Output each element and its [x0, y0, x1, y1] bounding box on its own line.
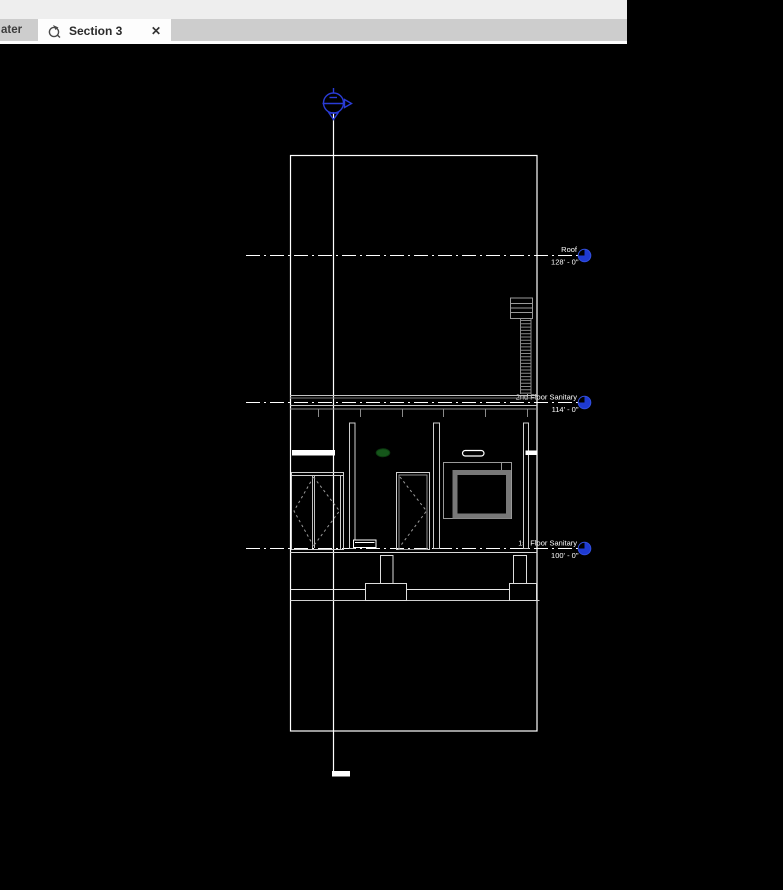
ceiling-fixture-right[interactable]: [526, 451, 538, 456]
level-name: Roof: [561, 245, 578, 254]
level-head-icon[interactable]: [578, 542, 591, 555]
roof-access-ladder[interactable]: [511, 298, 533, 394]
section-drawing-svg: Roof 128' - 0" 2nd Floor Sanitary 114' -…: [0, 0, 783, 885]
window-chrome: ater Section 3 ✕: [0, 0, 627, 43]
menu-strip: [0, 0, 627, 19]
tab-partial-label: ater: [1, 24, 22, 36]
ceiling-fixture-left[interactable]: [292, 450, 335, 456]
foundation[interactable]: [290, 553, 540, 601]
level-elevation: 100' - 0": [551, 551, 579, 560]
close-icon[interactable]: ✕: [151, 25, 161, 37]
footing-right: [510, 584, 537, 601]
green-dome-fixture[interactable]: [376, 449, 390, 457]
level-head-icon[interactable]: [578, 396, 591, 409]
mirror-cabinet[interactable]: [444, 463, 512, 519]
level-name: 2nd Floor Sanitary: [516, 393, 578, 402]
level-roof[interactable]: Roof 128' - 0": [246, 245, 591, 267]
mirror-frame: [455, 473, 509, 517]
level-elevation: 128' - 0": [551, 258, 579, 267]
pier-stem-right: [514, 556, 527, 584]
interior-wall-right[interactable]: [524, 423, 529, 549]
single-door-middle[interactable]: [397, 473, 430, 550]
grid-bubble-icon[interactable]: [323, 88, 352, 120]
door-swing-dashes: [400, 477, 427, 547]
level-head-icon[interactable]: [578, 249, 591, 262]
second-floor-structure[interactable]: [290, 396, 537, 418]
tab-label: Section 3: [69, 24, 122, 38]
base-fixture[interactable]: [354, 540, 377, 548]
interior-wall-middle[interactable]: [434, 423, 440, 549]
door-swing-dashes: [294, 477, 340, 546]
grid-line-end-mark: [332, 771, 350, 777]
capsule-light-fixture[interactable]: [463, 451, 485, 457]
footing-center: [366, 584, 407, 601]
tab-section-3[interactable]: Section 3 ✕: [38, 19, 171, 44]
interior-wall-left[interactable]: [350, 423, 356, 549]
pier-stem-center: [381, 556, 394, 584]
double-door-left[interactable]: [292, 473, 344, 550]
section-marker-icon: [46, 23, 62, 39]
tab-partial-water[interactable]: ater: [0, 19, 22, 41]
building-outline[interactable]: [291, 156, 538, 732]
drawing-canvas[interactable]: Roof 128' - 0" 2nd Floor Sanitary 114' -…: [0, 0, 783, 885]
joist-ticks: [319, 409, 528, 417]
level-elevation: 114' - 0": [552, 405, 579, 414]
